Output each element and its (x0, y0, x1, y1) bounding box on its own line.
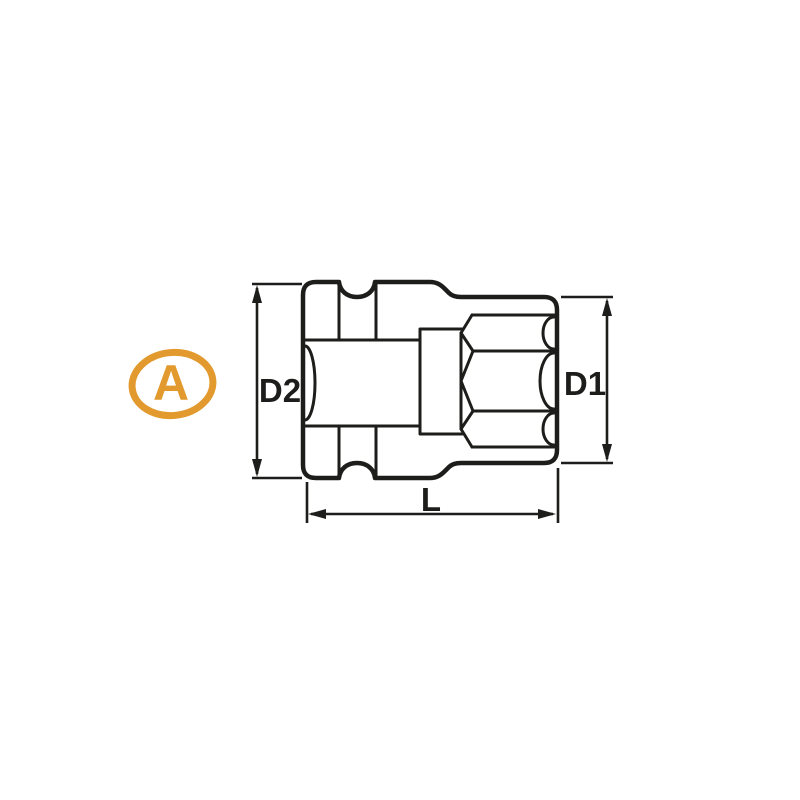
d1-arrow-down-icon (602, 444, 612, 462)
marker-a-label: A (153, 355, 189, 411)
d2-arrow-up-icon (252, 285, 262, 303)
socket-dimension-diagram: A D2 (0, 0, 800, 800)
d1-label: D1 (564, 365, 606, 402)
l-label: L (421, 481, 441, 518)
dimension-d1: D1 (561, 297, 613, 463)
d1-arrow-up-icon (602, 298, 612, 316)
l-arrow-right-icon (538, 509, 556, 519)
marker-a-badge: A (129, 348, 216, 419)
dimension-d2: D2 (252, 284, 302, 478)
d2-label: D2 (259, 372, 301, 409)
l-arrow-left-icon (308, 509, 326, 519)
technical-diagram-canvas: A D2 (0, 0, 800, 800)
d2-arrow-down-icon (252, 459, 262, 477)
socket-outline (303, 282, 557, 478)
socket-drawing (303, 282, 557, 478)
